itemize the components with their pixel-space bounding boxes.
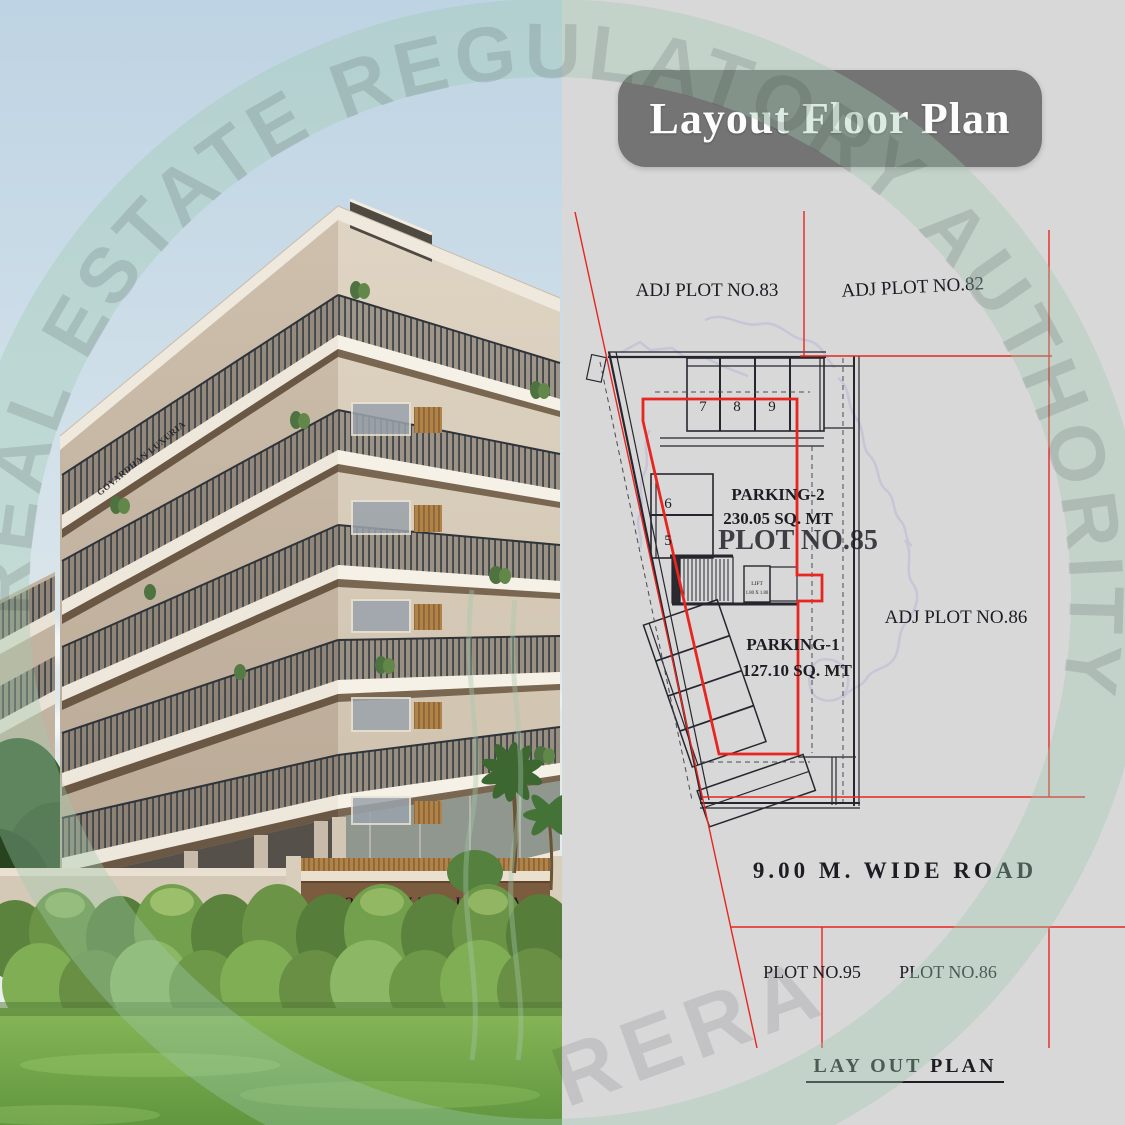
plan-labels: ADJ PLOT NO.83 ADJ PLOT NO.82 ADJ PLOT N… bbox=[636, 273, 1037, 1082]
plan-title: Layout Floor Plan bbox=[618, 70, 1042, 167]
plot-85-label: PLOT NO.85 bbox=[718, 525, 878, 556]
parking1-area: 127.10 SQ. MT bbox=[742, 661, 852, 680]
layout-plan-title: LAY OUT PLAN bbox=[813, 1055, 996, 1077]
adj-plot-83-label: ADJ PLOT NO.83 bbox=[636, 280, 779, 301]
stall-number: 6 bbox=[664, 496, 672, 512]
screenshot-root: GOVARDHAN LUXURIA GOVARDHAN LUXURIA bbox=[0, 0, 1125, 1125]
road-label: 9.00 M. WIDE ROAD bbox=[753, 858, 1037, 883]
floor-plan: ADJ PLOT NO.83 ADJ PLOT NO.82 ADJ PLOT N… bbox=[0, 0, 1125, 1125]
parking1-label: PARKING-1 bbox=[746, 635, 839, 654]
adj-plot-86-label: ADJ PLOT NO.86 bbox=[885, 607, 1028, 628]
plan-title-text: Layout Floor Plan bbox=[650, 93, 1011, 144]
plan-linework bbox=[586, 352, 860, 827]
adj-plot-82-label: ADJ PLOT NO.82 bbox=[841, 273, 985, 301]
plot-95-label: PLOT NO.95 bbox=[763, 962, 861, 982]
plot-86-label: PLOT NO.86 bbox=[899, 962, 997, 982]
stall-number: 7 bbox=[699, 399, 707, 415]
plan-dashed-lines bbox=[600, 358, 843, 802]
lift-label: LIFT bbox=[751, 581, 763, 587]
lift-size-label: 1.80 X 1.80 bbox=[746, 591, 769, 596]
plot-boundary-red bbox=[575, 211, 1125, 1048]
stall-number: 9 bbox=[768, 399, 776, 415]
stall-number: 8 bbox=[733, 399, 741, 415]
stall-number: 5 bbox=[664, 533, 672, 549]
parking2-label: PARKING-2 bbox=[731, 485, 824, 504]
